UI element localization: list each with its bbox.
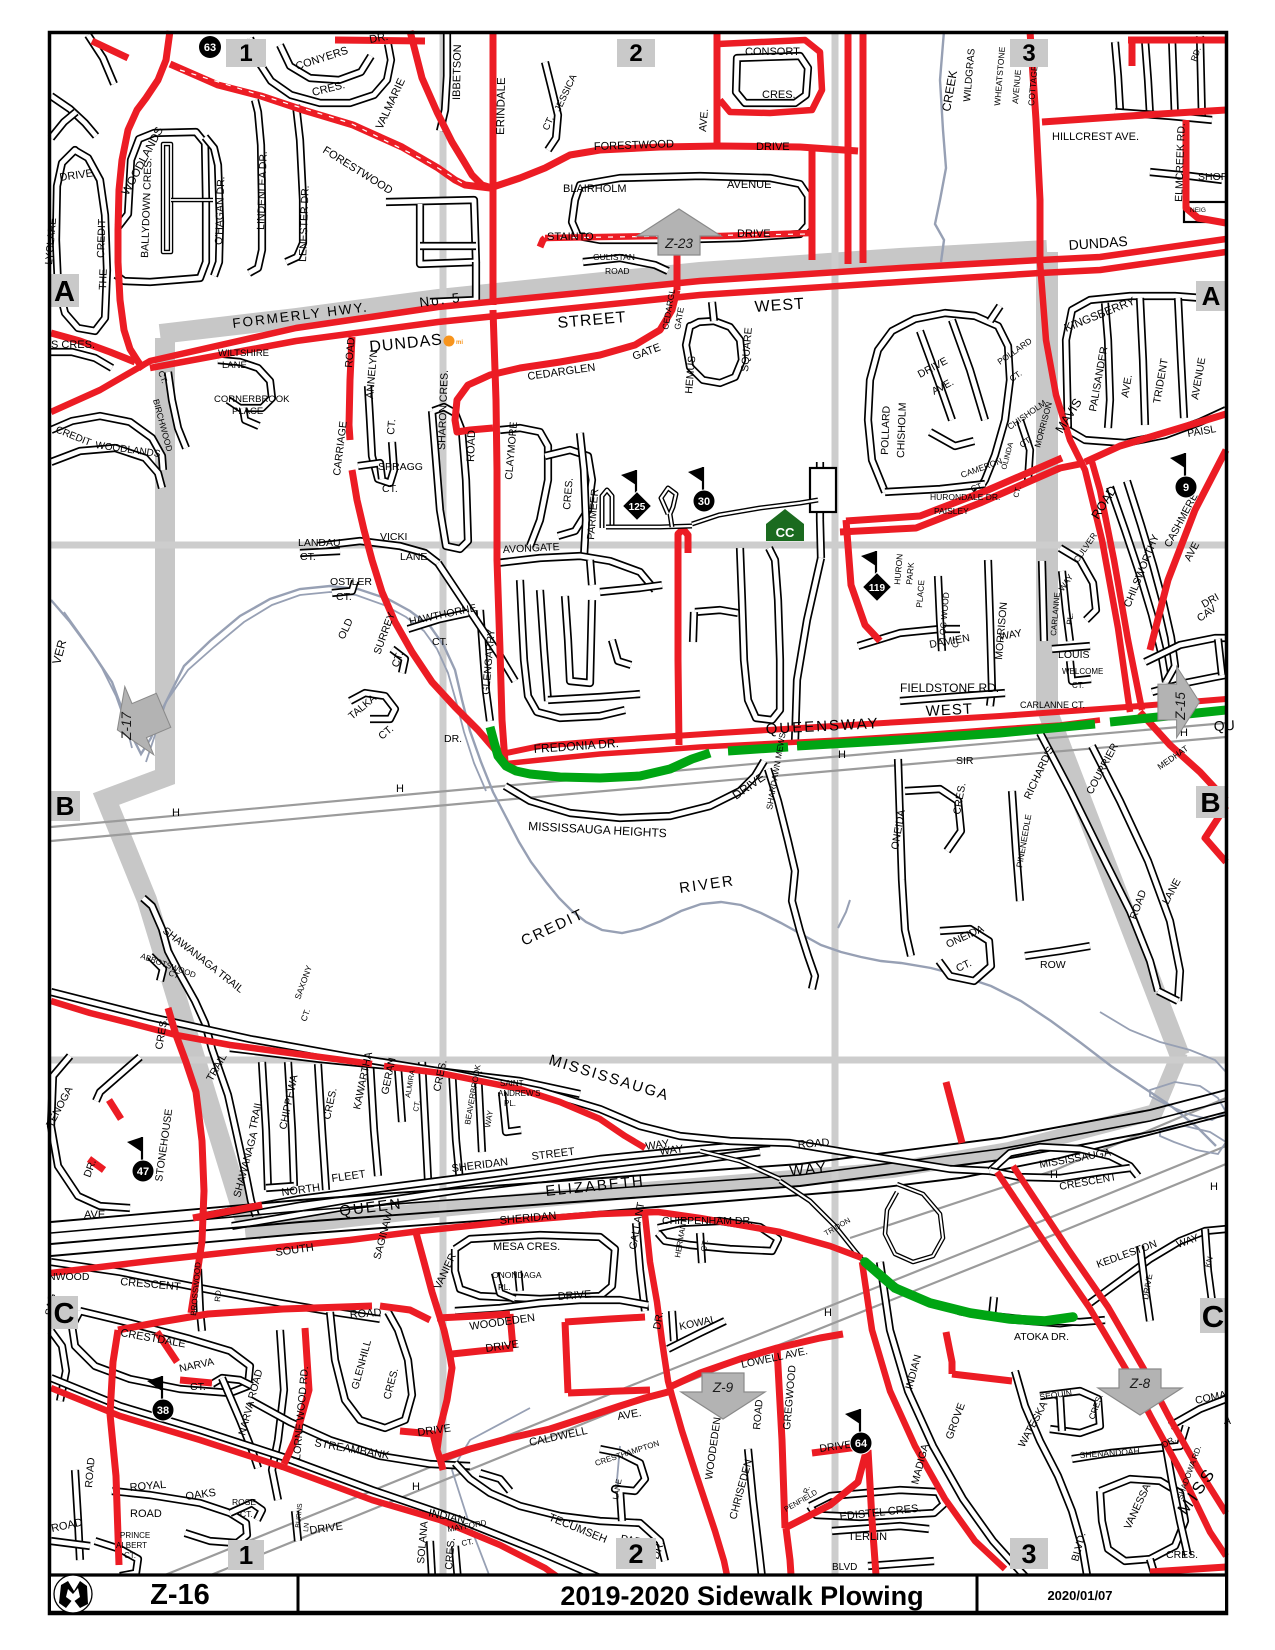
svg-text:CHISHOLM: CHISHOLM [895,402,909,458]
svg-text:ROAD: ROAD [349,1307,382,1321]
svg-text:POLLARD: POLLARD [879,405,893,455]
svg-text:BLAIRHOLM: BLAIRHOLM [563,183,627,195]
svg-text:NWOOD: NWOOD [48,1271,90,1283]
svg-text:HURONDALE DR.: HURONDALE DR. [930,492,1000,502]
svg-text:Z-8: Z-8 [1129,1376,1151,1391]
svg-text:CC: CC [776,525,795,540]
svg-text:ERINDALE: ERINDALE [495,77,508,135]
svg-text:ROSE: ROSE [232,1497,256,1507]
svg-text:DR.: DR. [444,733,462,745]
svg-text:SIR: SIR [956,755,974,767]
svg-text:H: H [838,749,846,761]
svg-text:ROAD: ROAD [130,1508,162,1520]
svg-text:SPRAGG: SPRAGG [378,461,423,473]
svg-text:MESA CRES.: MESA CRES. [493,1241,560,1253]
svg-text:TERLIN: TERLIN [848,1531,887,1543]
svg-text:CT.: CT. [124,1551,136,1560]
svg-text:THE: THE [97,269,110,290]
svg-text:RD.: RD. [213,1288,223,1303]
svg-text:9: 9 [1183,482,1189,494]
svg-text:119: 119 [869,583,886,594]
svg-text:A: A [1202,281,1221,311]
svg-text:PL.: PL. [498,1282,511,1292]
svg-text:H: H [412,1481,420,1493]
svg-text:30: 30 [698,496,710,508]
svg-text:47: 47 [137,1166,149,1178]
svg-text:63: 63 [204,42,216,54]
svg-text:PRINCE: PRINCE [120,1531,150,1540]
svg-text:A: A [54,276,75,308]
svg-text:OSTLER: OSTLER [330,576,372,588]
svg-text:DRIVE: DRIVE [737,228,771,240]
svg-text:ALBERT: ALBERT [116,1541,147,1550]
svg-text:WILTSHIRE: WILTSHIRE [218,348,269,359]
svg-text:64: 64 [855,1438,868,1450]
svg-text:CT.: CT. [382,483,398,495]
svg-text:VICKI: VICKI [380,531,407,543]
svg-text:2: 2 [629,40,642,67]
svg-text:H: H [1050,1169,1058,1181]
svg-text:FIELDSTONE RD.: FIELDSTONE RD. [900,681,999,695]
svg-text:HILLCREST AVE.: HILLCREST AVE. [1052,131,1139,143]
svg-text:O'HAGAN DR.: O'HAGAN DR. [213,176,227,245]
svg-text:SHOR: SHOR [1198,171,1229,183]
svg-text:LANE: LANE [222,360,247,371]
svg-text:C: C [54,1298,75,1330]
svg-text:1: 1 [239,1540,253,1570]
svg-text:CT.: CT. [1072,681,1084,690]
svg-text:LANDAU: LANDAU [298,537,341,549]
svg-text:H: H [824,1307,832,1319]
svg-text:CT.: CT. [385,419,398,436]
svg-text:2019-2020 Sidewalk Plowing: 2019-2020 Sidewalk Plowing [560,1581,923,1611]
svg-text:CT.: CT. [190,1381,206,1393]
svg-text:PARK: PARK [904,562,916,586]
svg-text:AVE.: AVE. [697,108,711,132]
svg-text:PAISLEY: PAISLEY [934,506,969,516]
svg-text:B: B [56,791,75,821]
svg-text:ROAD: ROAD [465,430,478,462]
svg-text:CARLANNE CT.: CARLANNE CT. [1020,700,1085,710]
svg-text:B: B [1200,787,1220,818]
svg-text:ROAD: ROAD [605,266,630,276]
svg-text:CREDIT: CREDIT [95,218,108,258]
svg-text:GULISTAN: GULISTAN [593,252,635,262]
svg-text:ROAD: ROAD [797,1137,830,1151]
svg-text:LOUIS: LOUIS [1058,649,1090,661]
svg-text:2: 2 [628,1539,643,1569]
svg-text:ATOKA DR.: ATOKA DR. [1014,1331,1069,1343]
svg-text:STAINTO: STAINTO [547,231,594,243]
svg-text:DRIVE: DRIVE [557,1289,591,1303]
svg-text:WELCOME: WELCOME [1062,667,1103,676]
svg-text:3: 3 [1021,1539,1036,1569]
svg-text:38: 38 [157,1405,169,1417]
svg-text:Z-23: Z-23 [664,236,693,251]
svg-text:Z-16: Z-16 [150,1579,210,1611]
svg-text:3: 3 [1022,40,1035,67]
svg-text:WEST: WEST [925,701,973,720]
svg-text:AVE.: AVE. [84,1209,108,1221]
svg-text:DRIVE: DRIVE [756,141,790,153]
svg-text:Z-15: Z-15 [1173,692,1188,721]
svg-text:2020/01/07: 2020/01/07 [1047,1588,1112,1603]
svg-text:WEST: WEST [754,296,805,316]
svg-text:S CRES.: S CRES. [51,339,95,351]
svg-text:CORNERBROOK: CORNERBROOK [214,394,290,405]
svg-text:IBBETSON: IBBETSON [451,44,464,100]
svg-text:CT.: CT. [411,1100,422,1113]
svg-text:ROW: ROW [1040,959,1066,971]
svg-text:H: H [1210,1181,1218,1193]
svg-text:CT.: CT. [336,591,352,603]
svg-text:Z-17: Z-17 [119,712,134,741]
svg-text:1: 1 [239,40,252,67]
svg-text:AVENUE: AVENUE [727,179,771,191]
svg-text:NEIG: NEIG [1190,207,1206,214]
svg-text:C: C [1202,1299,1224,1334]
svg-text:125: 125 [629,502,646,513]
svg-text:CT.: CT. [240,1509,253,1519]
svg-text:QU: QU [1213,717,1235,734]
svg-text:BLVD: BLVD [832,1562,857,1573]
svg-text:PL.: PL. [504,1099,516,1108]
svg-text:CONSORT: CONSORT [745,46,800,58]
svg-text:Z-9: Z-9 [712,1380,734,1395]
svg-text:PL.: PL. [1065,612,1075,625]
svg-text:CT.: CT. [300,551,316,563]
svg-text:ANDREW'S: ANDREW'S [498,1089,540,1098]
svg-text:CRES.: CRES. [1166,1549,1198,1561]
svg-text:LANE: LANE [400,551,427,563]
svg-text:mi: mi [456,340,463,346]
svg-text:CRES.: CRES. [762,89,796,101]
svg-text:SAINT: SAINT [500,1079,524,1088]
svg-text:H: H [396,783,404,795]
svg-text:CHIPPENHAM DR.: CHIPPENHAM DR. [662,1215,753,1227]
svg-text:ONONDAGA: ONONDAGA [492,1270,542,1280]
svg-text:PLACE: PLACE [232,406,263,417]
svg-text:CT.: CT. [432,636,448,648]
svg-text:H: H [172,807,180,819]
